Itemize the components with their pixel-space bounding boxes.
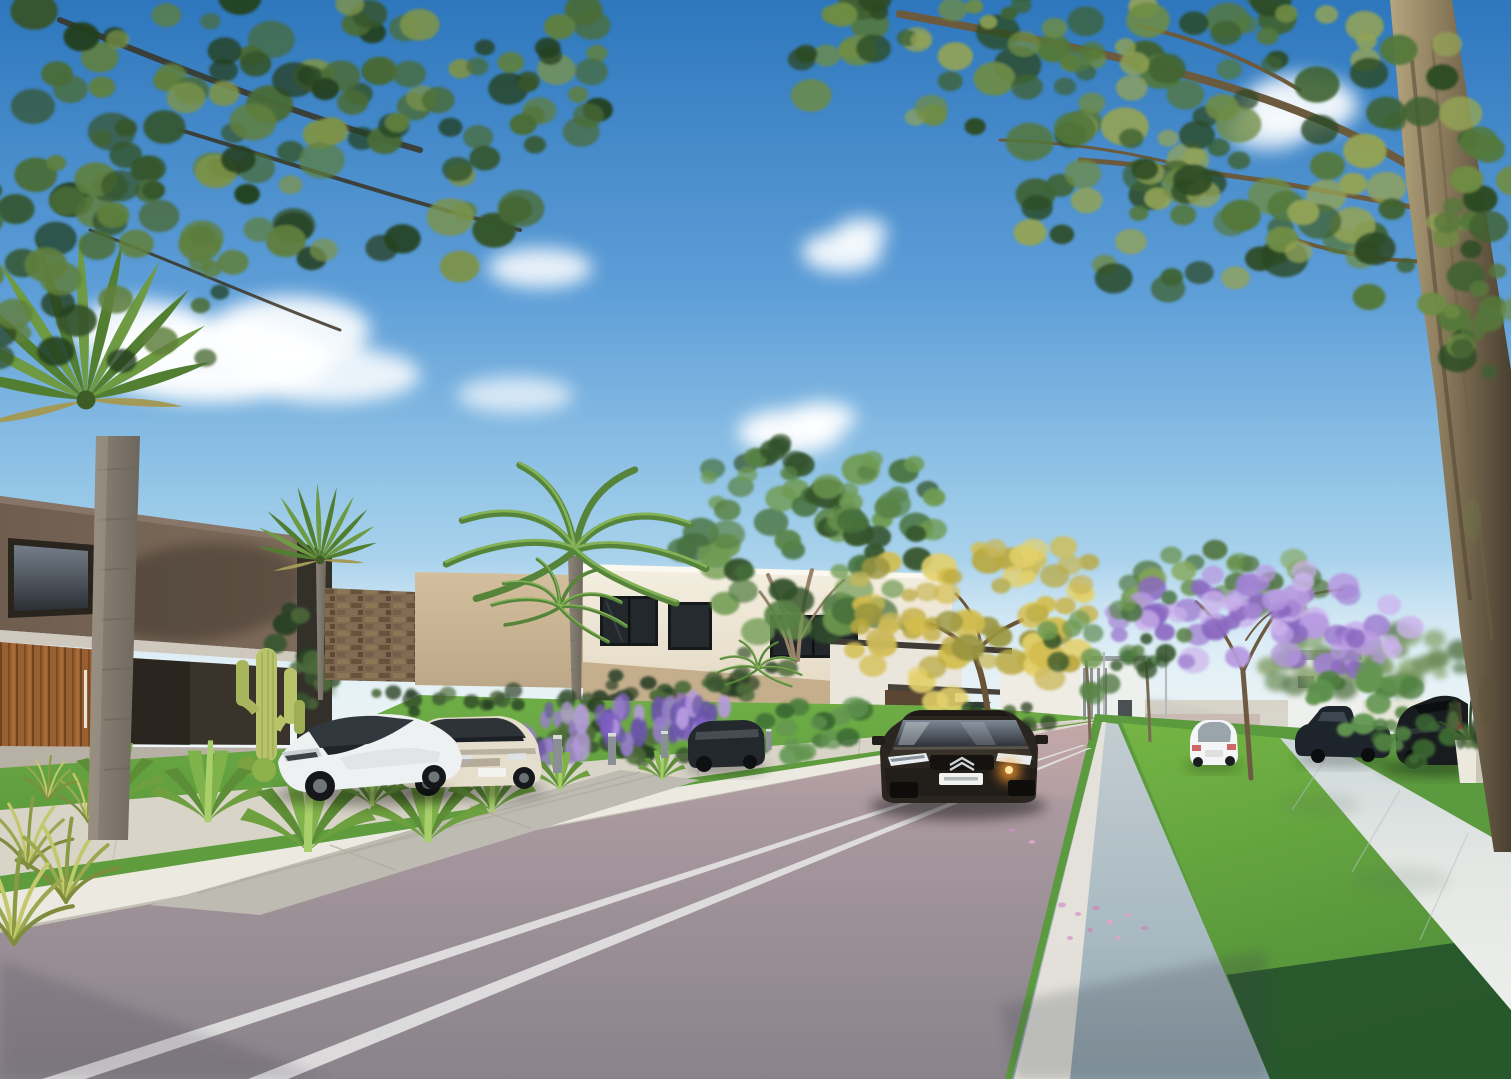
car-wheel-right [1008,780,1035,796]
scene-canvas [0,0,1511,1079]
driving-dark-car [870,710,1048,820]
car-roof [908,711,1010,716]
cloud-small-2 [457,377,573,413]
car-mirror-right [1035,735,1048,744]
upper-window-glass [14,545,88,611]
street-render-image [0,0,1511,1079]
cloud-small-1 [488,248,592,288]
parked-dark-minivan [684,720,768,774]
stone-feature-wall [325,588,415,682]
door-handle [84,670,87,728]
car-mirror-left [872,736,885,745]
car-wheel-left [890,782,918,798]
